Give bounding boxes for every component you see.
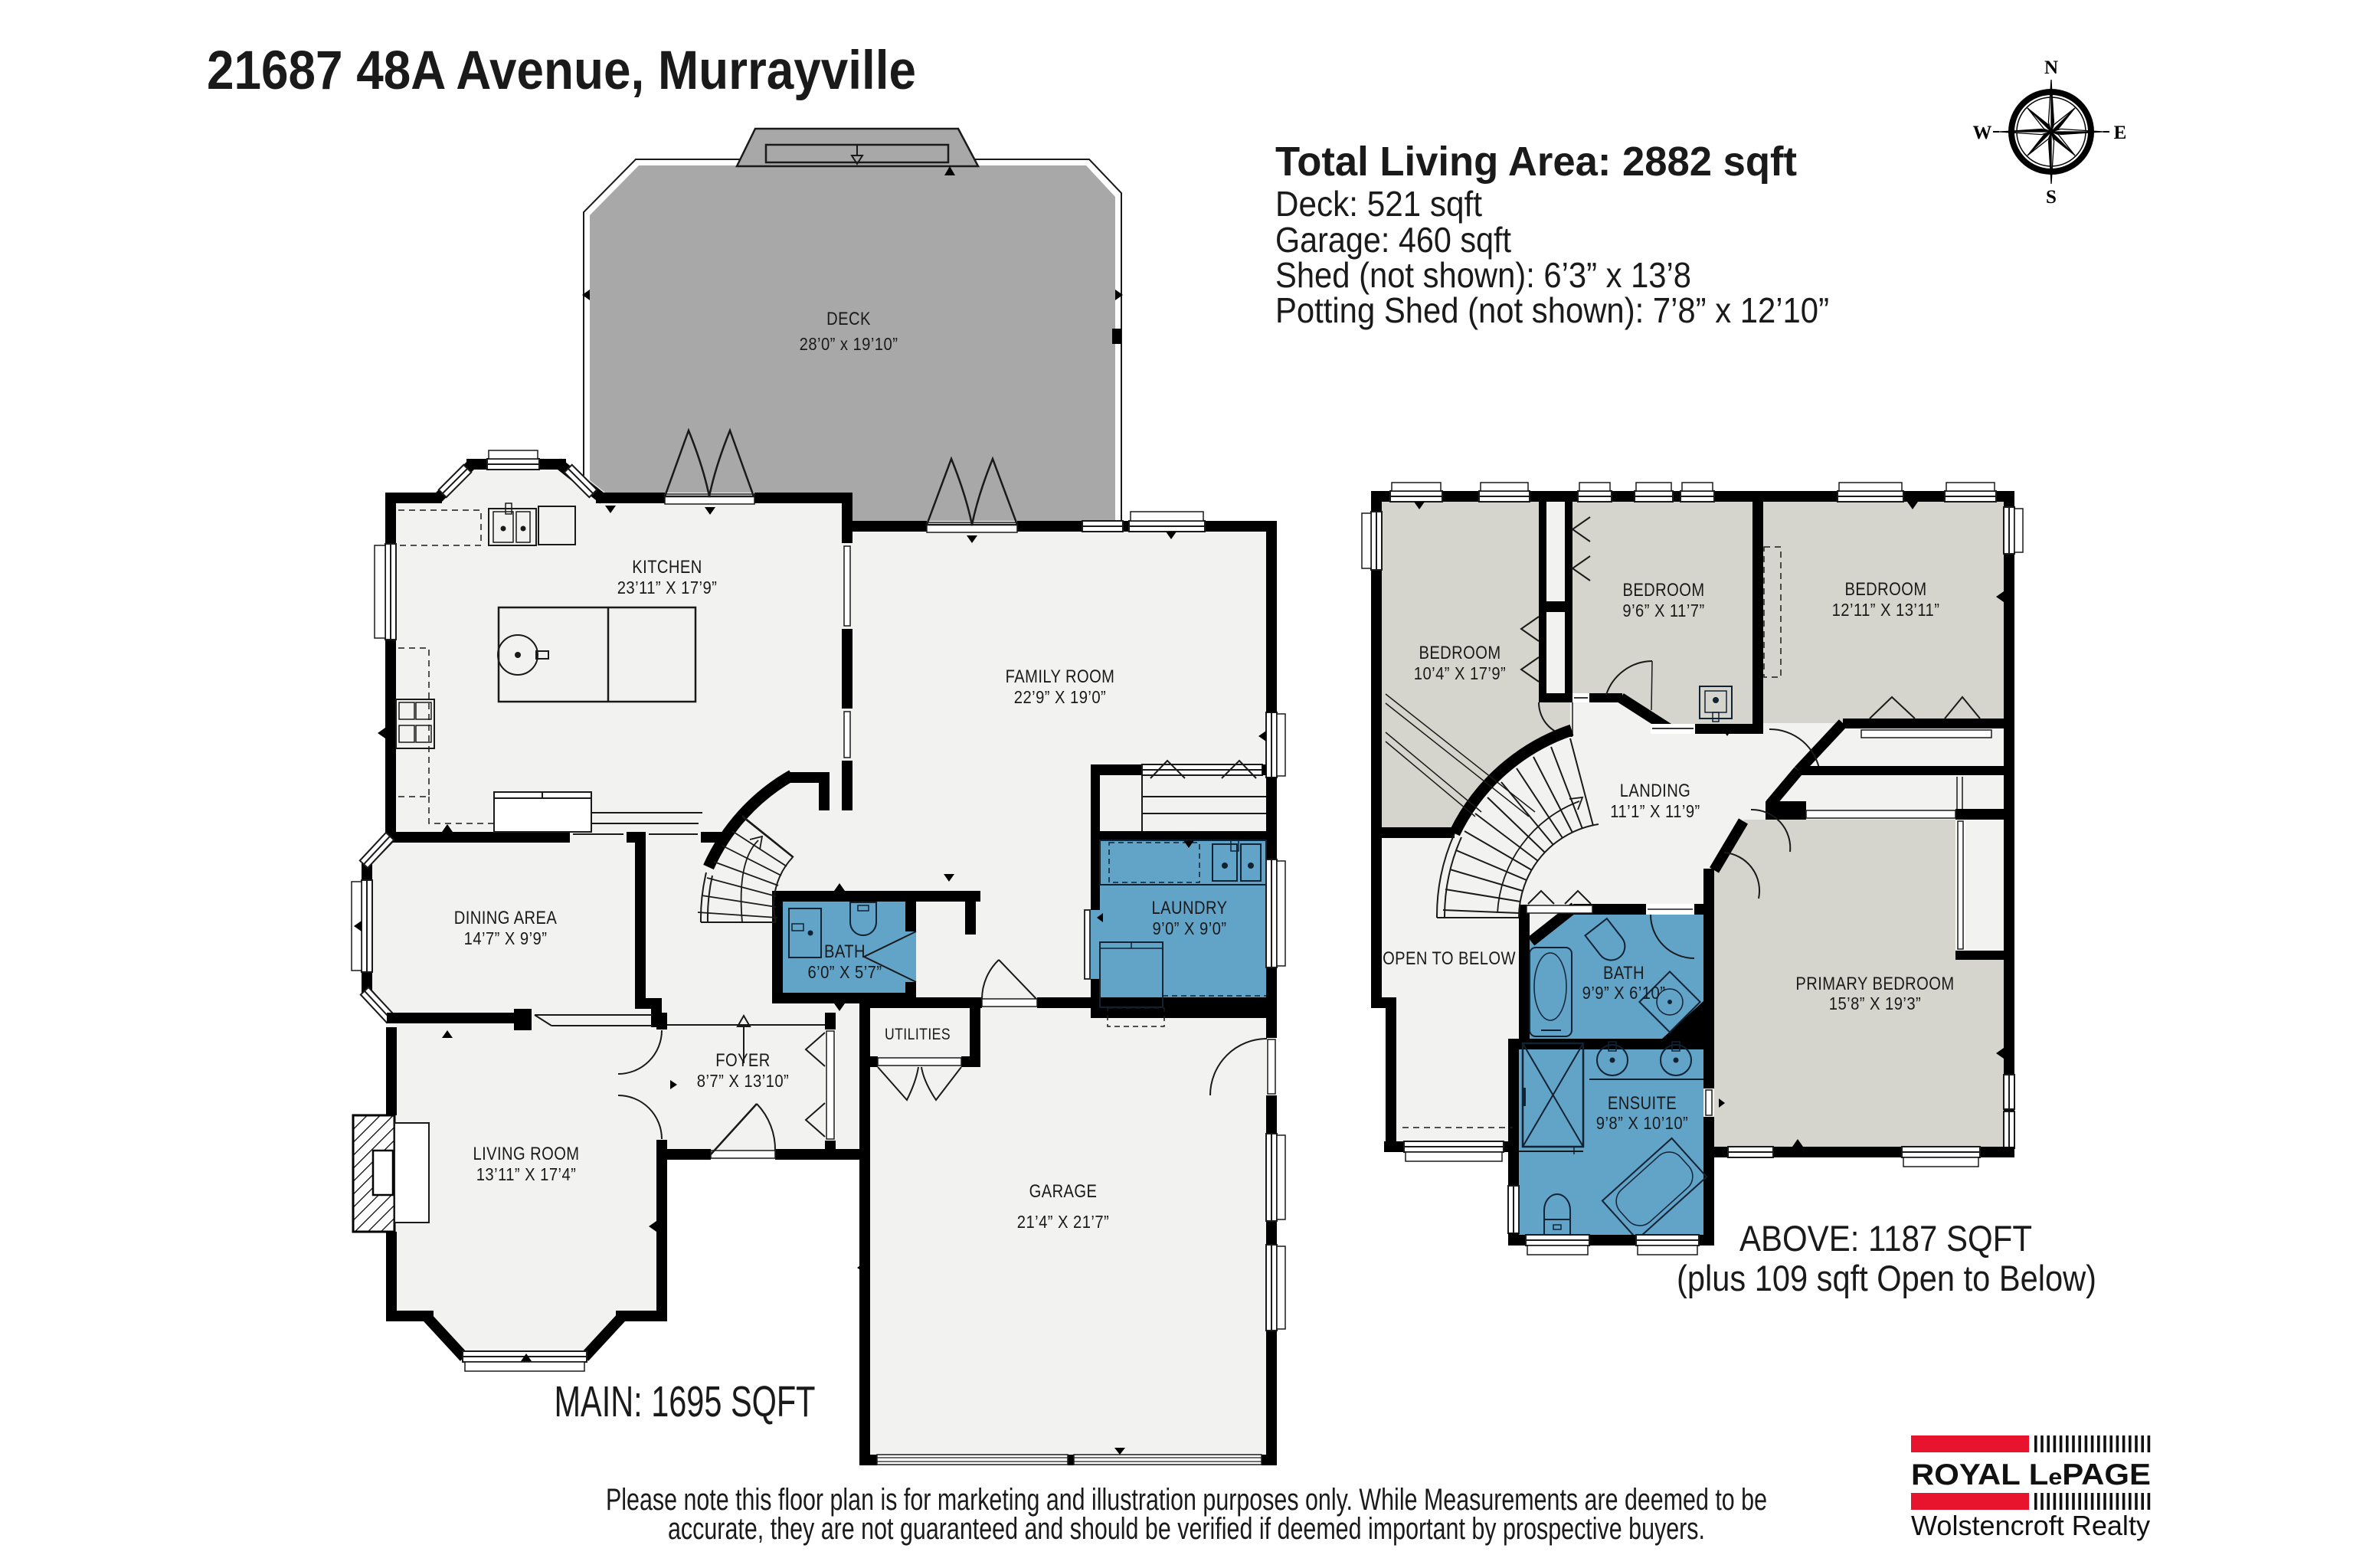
svg-text:9’0” X 9’0”: 9’0” X 9’0”	[1152, 918, 1226, 939]
svg-text:10’4” X 17’9”: 10’4” X 17’9”	[1414, 663, 1506, 684]
svg-text:14’7” X 9’9”: 14’7” X 9’9”	[464, 928, 548, 949]
svg-text:Total Living Area: 2882 sqft: Total Living Area: 2882 sqft	[1275, 139, 1797, 185]
svg-text:21687 48A Avenue, Murrayville: 21687 48A Avenue, Murrayville	[207, 41, 916, 101]
svg-text:ENSUITE: ENSUITE	[1608, 1092, 1677, 1113]
svg-text:Potting Shed (not shown): 7’8”: Potting Shed (not shown): 7’8” x 12’10”	[1275, 290, 1829, 330]
svg-text:ROYAL LePAGE: ROYAL LePAGE	[1911, 1458, 2151, 1491]
svg-text:9’6” X 11’7”: 9’6” X 11’7”	[1622, 601, 1704, 621]
svg-text:PRIMARY BEDROOM: PRIMARY BEDROOM	[1795, 973, 1954, 994]
svg-text:DECK: DECK	[826, 308, 871, 329]
svg-text:9’9” X 6’10”: 9’9” X 6’10”	[1582, 983, 1666, 1003]
svg-text:LIVING ROOM: LIVING ROOM	[473, 1143, 580, 1164]
svg-text:9’8” X 10’10”: 9’8” X 10’10”	[1596, 1113, 1688, 1134]
svg-text:MAIN: 1695 SQFT: MAIN: 1695 SQFT	[555, 1377, 816, 1426]
svg-text:15’8” X 19’3”: 15’8” X 19’3”	[1829, 994, 1921, 1014]
svg-text:12’11” X 13’11”: 12’11” X 13’11”	[1832, 600, 1940, 620]
svg-text:UTILITIES: UTILITIES	[885, 1026, 951, 1044]
svg-text:Shed (not shown): 6’3” x 13’8: Shed (not shown): 6’3” x 13’8	[1275, 255, 1691, 295]
svg-text:GARAGE: GARAGE	[1029, 1180, 1098, 1201]
svg-text:ABOVE: 1187 SQFT: ABOVE: 1187 SQFT	[1739, 1218, 2032, 1259]
svg-text:28’0” x 19’10”: 28’0” x 19’10”	[800, 334, 898, 355]
svg-text:Wolstencroft Realty: Wolstencroft Realty	[1911, 1510, 2150, 1541]
svg-text:BATH: BATH	[1603, 962, 1644, 983]
svg-text:6’0” X 5’7”: 6’0” X 5’7”	[807, 962, 882, 983]
svg-text:DINING AREA: DINING AREA	[454, 907, 558, 928]
svg-text:BEDROOM: BEDROOM	[1419, 642, 1500, 663]
svg-text:KITCHEN: KITCHEN	[632, 556, 702, 577]
svg-text:Deck: 521 sqft: Deck: 521 sqft	[1275, 184, 1482, 224]
svg-text:23’11” X 17’9”: 23’11” X 17’9”	[617, 578, 718, 598]
svg-text:22’9” X 19’0”: 22’9” X 19’0”	[1014, 687, 1106, 708]
svg-text:21’4” X 21’7”: 21’4” X 21’7”	[1017, 1212, 1109, 1232]
svg-text:BEDROOM: BEDROOM	[1844, 578, 1926, 599]
svg-text:11’1” X 11’9”: 11’1” X 11’9”	[1610, 801, 1700, 822]
svg-text:LAUNDRY: LAUNDRY	[1152, 897, 1228, 918]
svg-text:FAMILY ROOM: FAMILY ROOM	[1006, 666, 1115, 686]
svg-text:13’11” X 17’4”: 13’11” X 17’4”	[476, 1164, 577, 1185]
svg-text:8’7” X 13’10”: 8’7” X 13’10”	[697, 1071, 789, 1092]
svg-text:S: S	[2046, 187, 2057, 208]
svg-text:E: E	[2114, 123, 2127, 143]
svg-text:BATH: BATH	[824, 941, 866, 961]
svg-text:OPEN TO BELOW: OPEN TO BELOW	[1383, 948, 1516, 968]
svg-text:(plus 109 sqft Open to Below): (plus 109 sqft Open to Below)	[1677, 1258, 2096, 1298]
svg-text:LANDING: LANDING	[1620, 780, 1691, 800]
svg-text:BEDROOM: BEDROOM	[1622, 579, 1704, 600]
svg-text:accurate, they are not guarant: accurate, they are not guaranteed and sh…	[668, 1512, 1705, 1546]
svg-text:Garage: 460 sqft: Garage: 460 sqft	[1275, 220, 1511, 260]
svg-text:N: N	[2044, 57, 2058, 78]
svg-text:W: W	[1973, 123, 1992, 143]
